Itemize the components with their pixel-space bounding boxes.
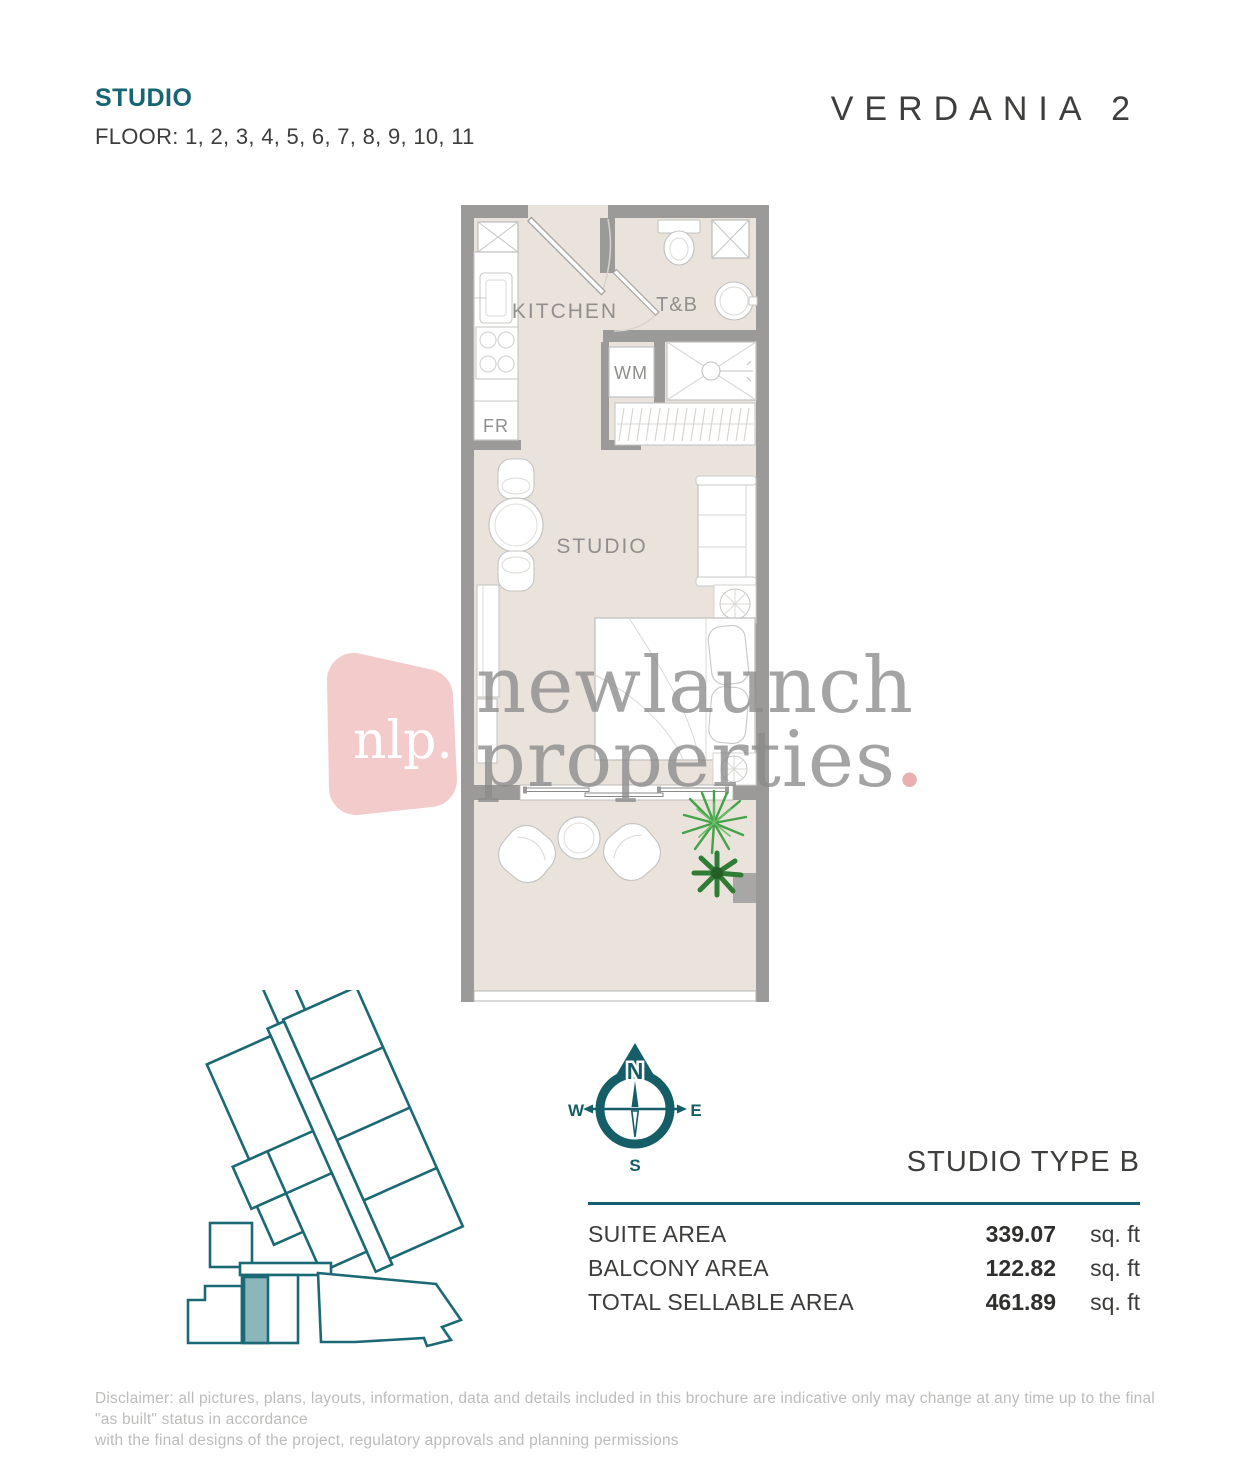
disclaimer-line2: with the final designs of the project, r… xyxy=(95,1430,1170,1451)
disclaimer: Disclaimer: all pictures, plans, layouts… xyxy=(95,1388,1170,1451)
studio-label: STUDIO xyxy=(556,535,647,558)
tnb-label: T&B xyxy=(656,294,698,316)
brochure-page: STUDIO FLOOR: 1, 2, 3, 4, 5, 6, 7, 8, 9,… xyxy=(0,0,1241,1477)
area-unit: sq. ft xyxy=(1056,1289,1140,1316)
divider-rule xyxy=(588,1202,1140,1205)
key-plan-highlighted-unit xyxy=(244,1277,268,1343)
unit-type-heading: STUDIO xyxy=(95,84,192,113)
area-value: 461.89 xyxy=(956,1289,1056,1316)
area-unit: sq. ft xyxy=(1056,1221,1140,1248)
kitchen-fixtures xyxy=(474,222,518,440)
area-label: BALCONY AREA xyxy=(588,1255,956,1282)
nlp-logo: nlp. xyxy=(318,640,460,820)
table-row: TOTAL SELLABLE AREA 461.89 sq. ft xyxy=(588,1289,1140,1323)
floors-line: FLOOR: 1, 2, 3, 4, 5, 6, 7, 8, 9, 10, 11 xyxy=(95,124,475,150)
table-row: BALCONY AREA 122.82 sq. ft xyxy=(588,1255,1140,1289)
compass-n: N xyxy=(627,1058,644,1084)
area-label: SUITE AREA xyxy=(588,1221,956,1248)
key-plan xyxy=(185,990,470,1355)
watermark-dot: . xyxy=(896,714,924,805)
watermark-line1: newlaunch xyxy=(476,650,924,723)
wm-label: WM xyxy=(614,363,648,383)
disclaimer-line1: Disclaimer: all pictures, plans, layouts… xyxy=(95,1388,1170,1430)
table-row: SUITE AREA 339.07 sq. ft xyxy=(588,1221,1140,1255)
compass-s: S xyxy=(629,1156,640,1175)
balcony-rail xyxy=(474,991,756,1001)
floor-plan: KITCHEN T&B WM FR STUDIO xyxy=(461,205,769,1002)
compass-icon: N W E S xyxy=(565,1035,710,1180)
compass-w: W xyxy=(568,1101,585,1120)
compass-e: E xyxy=(690,1101,701,1120)
watermark-line2: properties. xyxy=(476,723,924,797)
area-value: 122.82 xyxy=(956,1255,1056,1282)
area-unit: sq. ft xyxy=(1056,1255,1140,1282)
area-table: SUITE AREA 339.07 sq. ft BALCONY AREA 12… xyxy=(588,1221,1140,1323)
watermark-text: newlaunch properties. xyxy=(476,650,924,797)
kitchen-label: KITCHEN xyxy=(512,300,618,323)
area-value: 339.07 xyxy=(956,1221,1056,1248)
brand-logotype: VERDANIA 2 xyxy=(831,90,1141,129)
fr-label: FR xyxy=(483,416,509,436)
area-label: TOTAL SELLABLE AREA xyxy=(588,1289,956,1316)
unit-type-title: STUDIO TYPE B xyxy=(700,1146,1140,1179)
nlp-logo-text: nlp. xyxy=(353,711,453,771)
